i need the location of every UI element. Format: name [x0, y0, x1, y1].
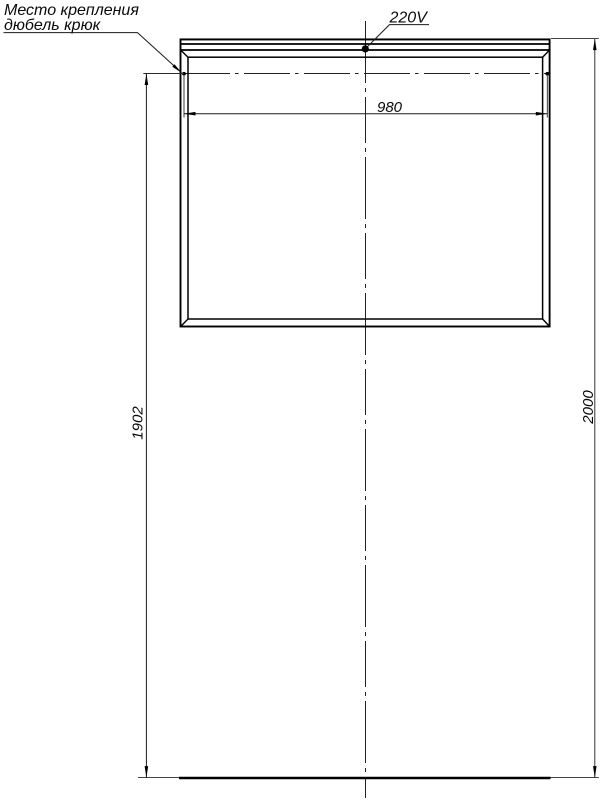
svg-text:дюбель крюк: дюбель крюк [4, 17, 102, 34]
svg-text:1902: 1902 [130, 406, 147, 440]
svg-text:220V: 220V [389, 9, 429, 26]
svg-text:980: 980 [377, 99, 403, 116]
svg-text:2000: 2000 [580, 390, 597, 425]
